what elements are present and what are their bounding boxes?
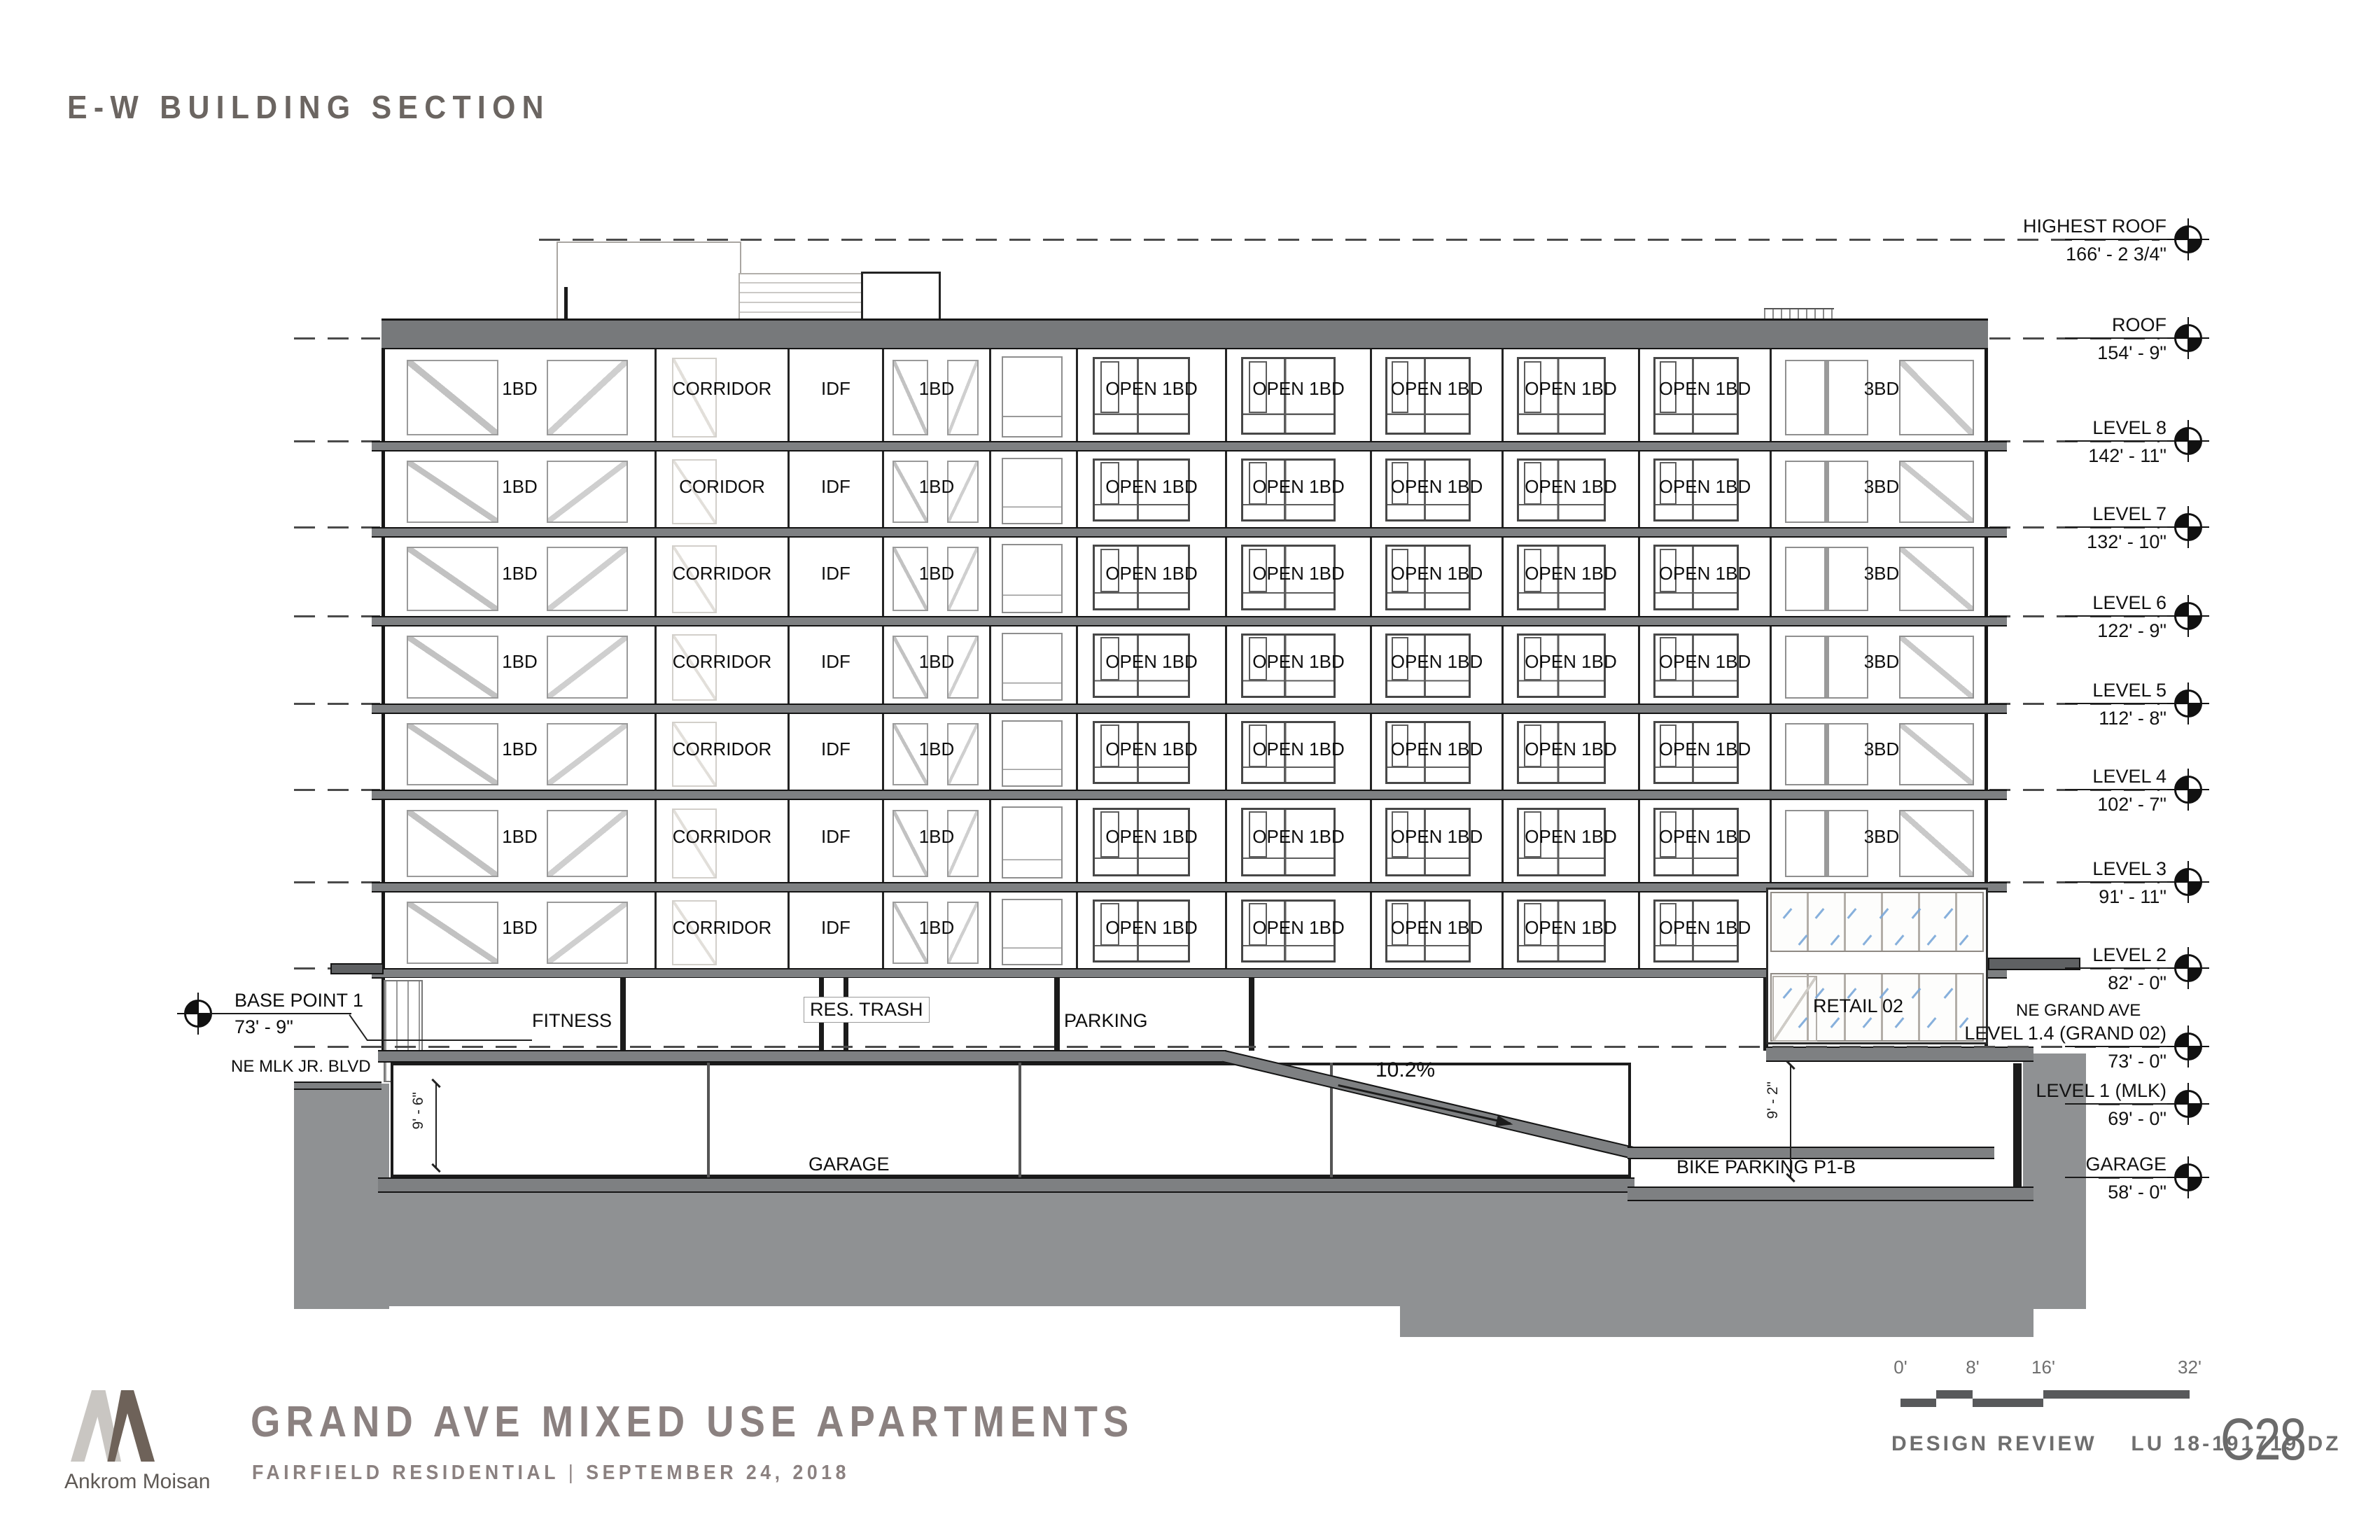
level-marker-icon (2174, 324, 2202, 352)
unit-cell: OPEN 1BD (1638, 451, 1770, 527)
floor-slab-band (372, 882, 2007, 892)
unit-cell: OPEN 1BD (1076, 714, 1225, 790)
unit-cell: CORRIDOR (654, 538, 787, 616)
unit-label: 1BD (385, 476, 654, 498)
unit-cell: OPEN 1BD (1501, 538, 1638, 616)
unit-cell: OPEN 1BD (1225, 714, 1370, 790)
unit-label: CORRIDOR (657, 738, 787, 760)
unit-cell: OPEN 1BD (1076, 892, 1225, 968)
unit-label: IDF (790, 738, 882, 760)
unit-cell: OPEN 1BD (1370, 892, 1501, 968)
unit-label: OPEN 1BD (1504, 738, 1638, 760)
unit-cell: OPEN 1BD (1225, 800, 1370, 882)
level-label-underline (2065, 615, 2176, 617)
unit-cell: 1BD (882, 800, 989, 882)
unit-label: CORRIDOR (657, 563, 787, 584)
unit-cell: 3BD (1770, 349, 1991, 441)
unit-cell: OPEN 1BD (1501, 626, 1638, 703)
unit-label: 3BD (1772, 563, 1991, 584)
unit-cell: OPEN 1BD (1501, 800, 1638, 882)
floor-slab-band (372, 703, 2007, 714)
unit-label: CORRIDOR (657, 826, 787, 848)
level-name: LEVEL 6 (2092, 592, 2166, 614)
room-label-fitness: FITNESS (532, 1010, 612, 1032)
level-label-underline (2065, 789, 2176, 790)
unit-label: OPEN 1BD (1078, 378, 1225, 400)
unit-cell: OPEN 1BD (1225, 451, 1370, 527)
unit-cell: 1BD (882, 538, 989, 616)
firm-name: Ankrom Moisan (64, 1470, 210, 1494)
base-point-label: BASE POINT 1 (234, 990, 363, 1011)
unit-cell: 1BD (385, 349, 654, 441)
dim-text-garage-height: 9' - 6" (410, 1092, 427, 1129)
floor-row-level-2: 1BDCORRIDORIDF1BDOPEN 1BDOPEN 1BDOPEN 1B… (381, 892, 1988, 968)
scale-bar-segment (1973, 1399, 2043, 1407)
unit-label: OPEN 1BD (1504, 378, 1638, 400)
unit-label: OPEN 1BD (1078, 476, 1225, 498)
unit-label: 3BD (1772, 738, 1991, 760)
subtitle-separator: | (568, 1462, 577, 1484)
unit-label: 1BD (884, 378, 989, 400)
roof-bulkhead-stair (861, 272, 941, 324)
unit-label: 3BD (1772, 826, 1991, 848)
scale-tick-label: 16' (2031, 1357, 2055, 1378)
dim-line-bike-height (1790, 1065, 1791, 1177)
dim-text-bike-height: 9' - 2" (1765, 1081, 1781, 1119)
ground-slab-left (378, 1050, 1226, 1063)
unit-cell: OPEN 1BD (1370, 800, 1501, 882)
unit-cell: 3BD (1770, 451, 1991, 527)
unit-label: 1BD (884, 651, 989, 673)
unit-cell: 3BD (1770, 538, 1991, 616)
unit-cell: OPEN 1BD (1370, 714, 1501, 790)
base-point-marker-icon (184, 1000, 212, 1028)
unit-cell: CORRIDOR (654, 892, 787, 968)
unit-cell: OPEN 1BD (1370, 349, 1501, 441)
unit-cell: OPEN 1BD (1225, 538, 1370, 616)
level-elevation: 122' - 9" (2097, 620, 2166, 642)
level-label-underline (2065, 1103, 2176, 1105)
unit-cell: 1BD (882, 626, 989, 703)
roof-antenna-post (564, 287, 568, 321)
unit-cell: OPEN 1BD (1638, 892, 1770, 968)
unit-label: 1BD (385, 563, 654, 584)
garage-column (707, 1063, 710, 1177)
unit-label: IDF (790, 476, 882, 498)
level-elevation: 102' - 7" (2097, 794, 2166, 815)
ramp-slope-label: 10.2% (1375, 1058, 1435, 1082)
unit-cell (989, 714, 1076, 790)
unit-cell: IDF (787, 800, 882, 882)
unit-label: 1BD (884, 476, 989, 498)
level-marker-icon (2174, 427, 2202, 455)
page-title: E-W BUILDING SECTION (67, 88, 550, 126)
floor-row-level-8: 1BDCORRIDORIDF1BDOPEN 1BDOPEN 1BDOPEN 1B… (381, 349, 1988, 441)
unit-cell: CORRIDOR (654, 714, 787, 790)
room-label-res-trash: RES. TRASH (804, 997, 930, 1023)
level-name: LEVEL 8 (2092, 417, 2166, 439)
unit-label: 1BD (884, 826, 989, 848)
unit-cell: OPEN 1BD (1225, 892, 1370, 968)
level-name: LEVEL 3 (2092, 858, 2166, 880)
earth-deep-notch (1400, 1302, 2033, 1337)
roof-slab-band (381, 318, 1988, 349)
level-dash-line (294, 703, 380, 705)
unit-cell (989, 451, 1076, 527)
level-elevation: 58' - 0" (2108, 1182, 2166, 1203)
level-name: LEVEL 5 (2092, 680, 2166, 701)
unit-cell: IDF (787, 451, 882, 527)
unit-label: OPEN 1BD (1227, 826, 1370, 848)
unit-cell: 1BD (385, 626, 654, 703)
unit-cell: CORRIDOR (654, 349, 787, 441)
level-elevation: 154' - 9" (2097, 342, 2166, 364)
street-label-mlk: NE MLK JR. BLVD (231, 1057, 371, 1077)
unit-label: 1BD (385, 917, 654, 939)
unit-label: OPEN 1BD (1372, 651, 1501, 673)
level-name: LEVEL 7 (2092, 503, 2166, 525)
unit-label: OPEN 1BD (1372, 378, 1501, 400)
floor-row-level-7: 1BDCORIDORIDF1BDOPEN 1BDOPEN 1BDOPEN 1BD… (381, 451, 1988, 527)
scale-tick-label: 0' (1893, 1357, 1907, 1378)
unit-cell (989, 626, 1076, 703)
unit-cell: OPEN 1BD (1076, 538, 1225, 616)
unit-cell: 1BD (385, 714, 654, 790)
unit-cell: 1BD (882, 714, 989, 790)
earth-bottom-band (294, 1193, 2086, 1306)
unit-label: IDF (790, 563, 882, 584)
unit-label: OPEN 1BD (1504, 563, 1638, 584)
unit-label: OPEN 1BD (1227, 651, 1370, 673)
scale-tick-label: 8' (1966, 1357, 1979, 1378)
level14-slab-right (1766, 1046, 2033, 1062)
unit-label: IDF (790, 651, 882, 673)
garage-box (391, 1063, 1631, 1177)
level-marker-icon (2174, 954, 2202, 982)
ground-wall (1249, 978, 1254, 1051)
unit-cell: CORRIDOR (654, 800, 787, 882)
room-label-retail: RETAIL 02 (1813, 995, 1903, 1017)
unit-cell: OPEN 1BD (1076, 349, 1225, 441)
unit-label: OPEN 1BD (1640, 378, 1770, 400)
level-label-underline (2065, 967, 2176, 969)
level-dash-line (294, 789, 380, 791)
roof-bulkhead-elevator (556, 241, 741, 323)
unit-cell (989, 538, 1076, 616)
unit-label: 3BD (1772, 651, 1991, 673)
unit-label: OPEN 1BD (1227, 738, 1370, 760)
unit-label: OPEN 1BD (1227, 476, 1370, 498)
unit-cell: IDF (787, 349, 882, 441)
unit-label: IDF (790, 378, 882, 400)
bike-parking-right-wall (2013, 1063, 2022, 1201)
level-marker-icon (2174, 1090, 2202, 1118)
level-label-underline (2065, 881, 2176, 883)
floor-row-level-5: 1BDCORRIDORIDF1BDOPEN 1BDOPEN 1BDOPEN 1B… (381, 626, 1988, 703)
level-label-underline (2065, 337, 2176, 339)
level-dash-line (294, 526, 380, 528)
level-elevation: 166' - 2 3/4" (2066, 244, 2166, 265)
unit-label: 3BD (1772, 476, 1991, 498)
level-elevation: 73' - 0" (2108, 1051, 2166, 1072)
unit-cell: OPEN 1BD (1501, 892, 1638, 968)
project-subtitle: FAIRFIELD RESIDENTIAL|SEPTEMBER 24, 2018 (252, 1462, 850, 1485)
level-marker-icon (2174, 602, 2202, 630)
level-label-underline (2065, 703, 2176, 704)
unit-label: 3BD (1772, 378, 1991, 400)
level-dash-line (294, 1046, 2159, 1048)
drawing-sheet: E-W BUILDING SECTION HIGHEST ROOF166' - … (0, 0, 2380, 1540)
unit-label: CORRIDOR (657, 378, 787, 400)
base-point-underline (209, 1013, 351, 1014)
unit-cell: IDF (787, 538, 882, 616)
unit-label: OPEN 1BD (1078, 738, 1225, 760)
unit-label: OPEN 1BD (1372, 917, 1501, 939)
unit-cell: 1BD (385, 892, 654, 968)
scale-tick-label: 32' (2178, 1357, 2201, 1378)
garage-column (1018, 1063, 1021, 1177)
level-name: LEVEL 1 (MLK) (2036, 1080, 2166, 1102)
unit-cell: OPEN 1BD (1370, 538, 1501, 616)
unit-cell: OPEN 1BD (1076, 451, 1225, 527)
unit-cell: IDF (787, 626, 882, 703)
level-marker-icon (2174, 513, 2202, 541)
base-point-leader (349, 1014, 367, 1041)
floor-row-level-6: 1BDCORRIDORIDF1BDOPEN 1BDOPEN 1BDOPEN 1B… (381, 538, 1988, 616)
level-label-underline (2065, 1177, 2176, 1178)
project-title: GRAND AVE MIXED USE APARTMENTS (251, 1397, 1134, 1447)
level-marker-icon (2174, 1032, 2202, 1060)
unit-cell: CORIDOR (654, 451, 787, 527)
unit-label: 1BD (385, 826, 654, 848)
unit-label: 1BD (385, 651, 654, 673)
unit-cell: CORRIDOR (654, 626, 787, 703)
unit-label: OPEN 1BD (1372, 563, 1501, 584)
level-name: HIGHEST ROOF (2023, 216, 2166, 237)
dim-line-garage-height (435, 1084, 437, 1168)
unit-label: OPEN 1BD (1640, 563, 1770, 584)
unit-label: OPEN 1BD (1640, 651, 1770, 673)
level-dash-line (294, 440, 380, 442)
unit-cell (989, 349, 1076, 441)
level-label-underline (2065, 239, 2176, 240)
unit-cell: OPEN 1BD (1370, 451, 1501, 527)
unit-cell: OPEN 1BD (1225, 626, 1370, 703)
client-name: FAIRFIELD RESIDENTIAL (252, 1462, 559, 1484)
unit-label: OPEN 1BD (1372, 738, 1501, 760)
unit-cell: IDF (787, 892, 882, 968)
unit-label: OPEN 1BD (1078, 917, 1225, 939)
unit-label: CORRIDOR (657, 651, 787, 673)
floor-slab-band (372, 616, 2007, 626)
unit-cell: 3BD (1770, 714, 1991, 790)
level-dash-line (294, 881, 380, 883)
room-label-parking: PARKING (1064, 1010, 1148, 1032)
review-label: DESIGN REVIEW (1891, 1432, 2097, 1455)
unit-cell: 1BD (385, 451, 654, 527)
unit-label: OPEN 1BD (1504, 826, 1638, 848)
floor-slab-band (372, 790, 2007, 800)
level-name: LEVEL 4 (2092, 766, 2166, 787)
room-label-bike-parking: BIKE PARKING P1-B (1676, 1156, 1856, 1178)
unit-cell: OPEN 1BD (1638, 538, 1770, 616)
unit-label: OPEN 1BD (1504, 476, 1638, 498)
unit-cell: 3BD (1770, 626, 1991, 703)
unit-label: OPEN 1BD (1078, 563, 1225, 584)
unit-label: OPEN 1BD (1640, 476, 1770, 498)
unit-label: OPEN 1BD (1372, 826, 1501, 848)
level-marker-icon (2174, 689, 2202, 717)
level-elevation: 112' - 8" (2099, 708, 2166, 729)
level-elevation: 132' - 10" (2087, 531, 2166, 553)
unit-cell: OPEN 1BD (1501, 714, 1638, 790)
unit-label: 1BD (884, 738, 989, 760)
unit-label: OPEN 1BD (1078, 826, 1225, 848)
unit-cell (989, 892, 1076, 968)
unit-label: OPEN 1BD (1372, 476, 1501, 498)
scale-bar-segment (1900, 1399, 1936, 1407)
unit-cell: OPEN 1BD (1076, 800, 1225, 882)
unit-cell: 1BD (882, 451, 989, 527)
level-dash-line (539, 239, 2159, 241)
ground-wall (1054, 978, 1060, 1051)
retail-glass-upper (1770, 892, 1984, 952)
street-label-grand: NE GRAND AVE (2016, 1001, 2141, 1021)
unit-label: OPEN 1BD (1640, 738, 1770, 760)
unit-cell: 1BD (385, 538, 654, 616)
unit-label: OPEN 1BD (1078, 651, 1225, 673)
roof-bulkhead-louver (738, 273, 864, 323)
unit-cell: 1BD (882, 892, 989, 968)
unit-cell: 3BD (1770, 800, 1991, 882)
unit-label: OPEN 1BD (1227, 378, 1370, 400)
unit-cell: OPEN 1BD (1225, 349, 1370, 441)
level-elevation: 69' - 0" (2108, 1108, 2166, 1130)
unit-cell: OPEN 1BD (1501, 451, 1638, 527)
scale-bar-segment (2043, 1390, 2190, 1399)
retail-door (1772, 976, 1817, 1042)
issue-date: SEPTEMBER 24, 2018 (586, 1462, 850, 1484)
unit-cell: 1BD (385, 800, 654, 882)
unit-label: OPEN 1BD (1227, 917, 1370, 939)
floor-slab-band (372, 441, 2007, 451)
unit-label: IDF (790, 917, 882, 939)
level-name: ROOF (2112, 314, 2166, 336)
sheet-number: C28 (2220, 1406, 2305, 1473)
unit-cell: OPEN 1BD (1638, 626, 1770, 703)
level-marker-icon (2174, 776, 2202, 804)
level-name: GARAGE (2085, 1154, 2166, 1175)
unit-cell (989, 800, 1076, 882)
unit-cell: 1BD (882, 349, 989, 441)
unit-label: 1BD (385, 378, 654, 400)
unit-cell: OPEN 1BD (1638, 349, 1770, 441)
level-label-underline (2065, 1046, 2176, 1047)
level-elevation: 142' - 11" (2088, 445, 2166, 467)
ground-wall (620, 978, 626, 1051)
floor-slab-band (372, 968, 2007, 979)
level-marker-icon (2174, 868, 2202, 896)
base-point-elevation: 73' - 9" (234, 1016, 293, 1038)
unit-label: CORRIDOR (657, 917, 787, 939)
scale-bar-segment (1936, 1390, 1973, 1399)
canopy-left (330, 963, 384, 974)
level-elevation: 82' - 0" (2108, 972, 2166, 994)
level-name: LEVEL 2 (2092, 944, 2166, 966)
bike-parking-floor-slab (1627, 1186, 2033, 1201)
unit-cell: OPEN 1BD (1076, 626, 1225, 703)
level-dash-line (294, 337, 380, 339)
unit-label: 1BD (385, 738, 654, 760)
unit-label: 1BD (884, 563, 989, 584)
floor-slab-band (372, 527, 2007, 538)
title-accent-bar (70, 72, 393, 80)
level-name: LEVEL 1.4 (GRAND 02) (1964, 1023, 2166, 1044)
ankrom-moisan-logo (66, 1386, 171, 1462)
base-point-leader-horizontal (367, 1039, 532, 1041)
level-label-underline (2065, 526, 2176, 528)
unit-label: OPEN 1BD (1640, 917, 1770, 939)
garage-floor-slab (378, 1177, 1634, 1193)
unit-label: 1BD (884, 917, 989, 939)
unit-label: OPEN 1BD (1640, 826, 1770, 848)
floor-row-level-3: 1BDCORRIDORIDF1BDOPEN 1BDOPEN 1BDOPEN 1B… (381, 800, 1988, 882)
level-marker-icon (2174, 1163, 2202, 1191)
level-label-underline (2065, 440, 2176, 442)
level-dash-line (294, 615, 380, 617)
unit-label: CORIDOR (657, 476, 787, 498)
level-marker-icon (2174, 225, 2202, 253)
unit-cell: OPEN 1BD (1501, 349, 1638, 441)
floor-row-level-4: 1BDCORRIDORIDF1BDOPEN 1BDOPEN 1BDOPEN 1B… (381, 714, 1988, 790)
room-label-garage: GARAGE (808, 1154, 890, 1175)
unit-label: IDF (790, 826, 882, 848)
unit-label: OPEN 1BD (1504, 917, 1638, 939)
unit-cell: IDF (787, 714, 882, 790)
unit-label: OPEN 1BD (1227, 563, 1370, 584)
level-elevation: 91' - 11" (2099, 886, 2166, 908)
unit-cell: OPEN 1BD (1370, 626, 1501, 703)
unit-cell: OPEN 1BD (1638, 800, 1770, 882)
mlk-sidewalk-slab (294, 1081, 381, 1090)
unit-cell: OPEN 1BD (1638, 714, 1770, 790)
unit-label: OPEN 1BD (1504, 651, 1638, 673)
